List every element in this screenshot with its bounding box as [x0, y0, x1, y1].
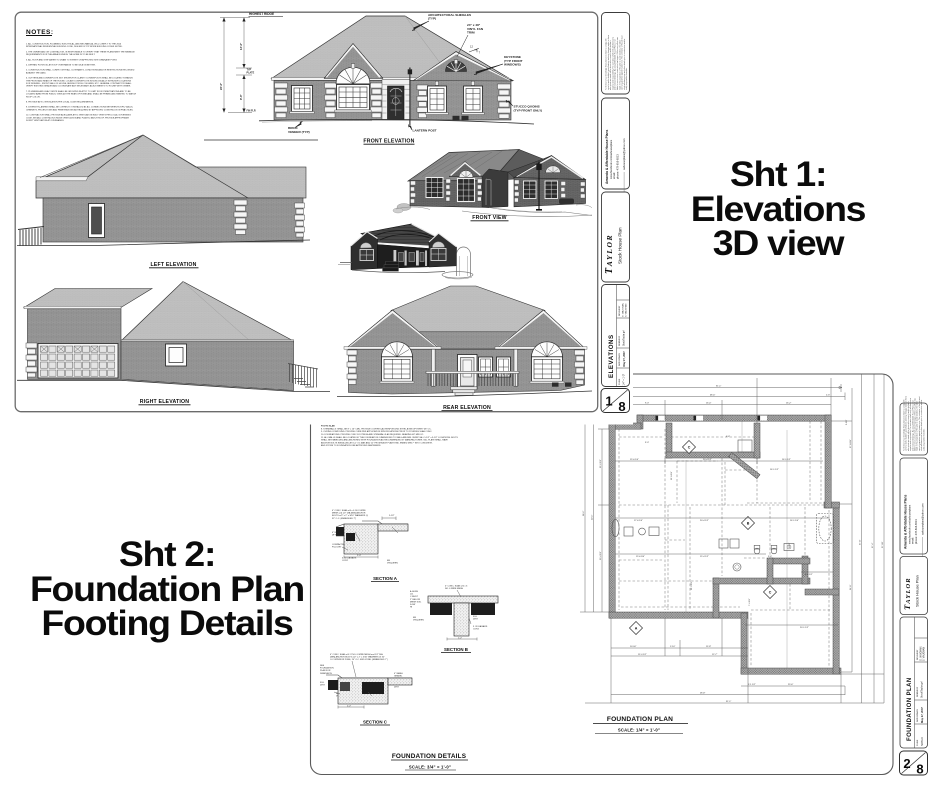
svg-text:4'-6": 4'-6"	[726, 436, 730, 438]
svg-text:28'-2": 28'-2"	[583, 510, 585, 516]
svg-text:1'-2": 1'-2"	[458, 637, 462, 639]
svg-text:11'-4 1/2": 11'-4 1/2"	[638, 654, 647, 656]
svg-text:REQUIREMENTS FOR THE AREA IN W: REQUIREMENTS FOR THE AREA IN WHICH THE H…	[26, 53, 96, 56]
svg-text:31'-1": 31'-1"	[716, 385, 722, 387]
svg-text:5. CONSTRUCTION SHALL COMPLY: 5. CONSTRUCTION SHALL COMPLY WITH ALL CO…	[26, 69, 135, 72]
svg-text:SECTION B: SECTION B	[444, 647, 468, 652]
svg-text:PLATE: PLATE	[247, 72, 255, 75]
svg-text:AND STORE TO FOUNDATION USE AP: AND STORE TO FOUNDATION USE APPROVED FAS…	[321, 444, 381, 447]
svg-text:6'-4 1/2": 6'-4 1/2"	[805, 574, 813, 576]
svg-text:FRONT ELEVATION: FRONT ELEVATION	[363, 139, 414, 145]
svg-text:B: B	[747, 521, 750, 525]
svg-text:6. GUTTERS AND DOWNSPOUTS NOT: 6. GUTTERS AND DOWNSPOUTS NOT SHOWN FOR …	[26, 77, 133, 80]
svg-text:DIRT: DIRT	[473, 619, 479, 621]
svg-text:37'-4": 37'-4"	[872, 542, 874, 548]
svg-text:TAYLOR: TAYLOR	[604, 234, 615, 274]
svg-text:VISQUEEN: VISQUEEN	[387, 563, 398, 565]
svg-text:LEFT ELEVATION: LEFT ELEVATION	[150, 262, 196, 268]
svg-text:G. VAUGHAN,: G. VAUGHAN,	[622, 302, 625, 317]
svg-text:VISQUEEN: VISQUEEN	[413, 620, 424, 622]
svg-text:1'-10": 1'-10"	[670, 646, 676, 648]
svg-text:(MIN) ANCHOR BOLTS w/2" x 2" x: (MIN) ANCHOR BOLTS w/2" x 2" x 3/16" WAS…	[330, 656, 385, 659]
svg-text:FOUNDATION PLAN: FOUNDATION PLAN	[907, 677, 913, 741]
svg-text:G. VAUGHAN,: G. VAUGHAN,	[920, 646, 923, 661]
svg-text:8. PROVIDE ATTIC VENTILATION: 8. PROVIDE ATTIC VENTILATION PER LOCAL C…	[26, 101, 94, 104]
svg-text:8. STEMWALLS: SHALL BE 8" x: 8. STEMWALLS: SHALL BE 8" x 16" CMU. PRO…	[321, 427, 432, 430]
svg-text:22'-2": 22'-2"	[219, 82, 223, 90]
svg-text:AGAINST THE LAND.: AGAINST THE LAND.	[26, 71, 47, 74]
svg-text:A GUNS: A GUNS	[410, 590, 418, 593]
svg-text:20'-4 1/2": 20'-4 1/2"	[700, 520, 709, 522]
svg-text:Amanda & Affordable House Plan: Amanda & Affordable House Plans	[903, 495, 907, 549]
svg-text:SCALE: 1/4" = 1'-0": SCALE: 1/4" = 1'-0"	[618, 728, 660, 733]
svg-text:9. CURING COMPOUND: PROVIDE: 9. CURING COMPOUND: PROVIDE CURB PER APP…	[321, 430, 432, 433]
svg-text:5-1/2": 5-1/2"	[846, 419, 848, 425]
svg-text:DIMENSION: DIMENSION	[320, 673, 332, 675]
svg-text:2'-2": 2'-2"	[347, 705, 351, 707]
svg-text:NO. 6 WIRE MESH: NO. 6 WIRE MESH	[445, 588, 464, 590]
svg-text:solely responsible thereafter.: solely responsible thereafter.	[625, 67, 628, 90]
svg-text:4" WASH: 4" WASH	[394, 672, 403, 675]
svg-text:9'-6": 9'-6"	[768, 556, 772, 558]
svg-text:SCALE: SCALE	[916, 739, 919, 746]
svg-text:TRIM: TRIM	[467, 31, 475, 35]
svg-text:StockTaylor.grf: StockTaylor.grf	[921, 681, 924, 698]
svg-text:8: 8	[618, 399, 625, 414]
svg-text:16'-1 1/4": 16'-1 1/4"	[790, 520, 799, 522]
svg-text:8: 8	[916, 762, 923, 777]
svg-text:11'-8": 11'-8"	[706, 646, 711, 648]
svg-text:10. CONTRACTOR SHALL PROVIDE: 10. CONTRACTOR SHALL PROVIDE ADEQUATE AT…	[26, 114, 131, 117]
svg-text:1. ALL CONSTRUCTION, PLUMBING: 1. ALL CONSTRUCTION, PLUMBING, ELECTRICA…	[26, 43, 122, 46]
svg-text:2. THE OWNER AND OR CONTRACTO: 2. THE OWNER AND OR CONTRACTOR, IS RESPO…	[26, 50, 135, 53]
svg-text:REAR ELEVATION: REAR ELEVATION	[443, 405, 491, 411]
svg-text:CONT.: CONT.	[473, 629, 480, 631]
svg-text:SECTION C: SECTION C	[363, 720, 388, 725]
svg-text:GRAVEL: GRAVEL	[394, 675, 403, 678]
svg-text:9'-0": 9'-0"	[239, 93, 243, 100]
svg-text:9'-0": 9'-0"	[645, 402, 649, 404]
svg-text:40'-1": 40'-1"	[592, 514, 594, 520]
svg-text:O.C.INTERIOR ZONE, 24" O.C. EN: O.C.INTERIOR ZONE, 24" O.C. END ZONE. (E…	[330, 659, 388, 661]
svg-text:MESH and 1/2" DIA (MIN) ANCHOR: MESH and 1/2" DIA (MIN) ANCHOR	[332, 512, 366, 515]
svg-text:20'-1": 20'-1"	[789, 542, 791, 548]
svg-text:17'-6 1/4": 17'-6 1/4"	[634, 520, 643, 522]
svg-text:SCALE: SCALE	[618, 378, 621, 385]
svg-text:13'-4 1/2": 13'-4 1/2"	[600, 551, 602, 560]
svg-text:ANCHOR BOLTS INSTALLED AT 6'-0: ANCHOR BOLTS INSTALLED AT 6'-0" OC MAX A…	[321, 441, 433, 444]
svg-text:phone: 478-616-6513: phone: 478-616-6513	[914, 519, 918, 544]
svg-text:SECTION A: SECTION A	[373, 576, 398, 581]
svg-text:SOFFIT VENTILATION AT OVERHANG: SOFFIT VENTILATION AT OVERHANGS.	[26, 119, 65, 122]
svg-text:57'-8": 57'-8"	[860, 539, 862, 545]
svg-text:CHIMNEYS, PROJECTIONS AND PENE: CHIMNEYS, PROJECTIONS AND PENETRATIONS A…	[26, 108, 134, 111]
svg-text:May 27, 2007: May 27, 2007	[623, 351, 626, 367]
svg-text:NOTED: NOTED	[921, 737, 924, 746]
svg-text:5-1/2": 5-1/2"	[389, 515, 395, 517]
svg-text:32" O.C. (EMBEDDED 7"): 32" O.C. (EMBEDDED 7")	[332, 518, 356, 520]
svg-text:THE FRONT AND REAR OF THE HOUS: THE FRONT AND REAR OF THE HOUSE. LOCATE …	[26, 79, 132, 82]
svg-text:LOCATED AWAY FROM PUBLIC VIEW: LOCATED AWAY FROM PUBLIC VIEW (AT THE RE…	[26, 93, 137, 96]
svg-text:17'-8 3/4": 17'-8 3/4"	[850, 439, 852, 448]
svg-text:FRONT VIEW: FRONT VIEW	[472, 215, 507, 221]
svg-text:HIGHEST RIDGE: HIGHEST RIDGE	[249, 12, 274, 16]
svg-text:LANTERN POST: LANTERN POST	[413, 129, 437, 133]
svg-text:DATE DRAWN: DATE DRAWN	[618, 353, 621, 366]
svg-text:DIRT: DIRT	[320, 685, 326, 687]
svg-text:1/4" = 1'-0": 1/4" = 1'-0"	[623, 374, 626, 386]
svg-text:57'-10": 57'-10"	[882, 541, 884, 548]
svg-text:7'-4 1/2": 7'-4 1/2"	[749, 598, 751, 606]
svg-text:13'-2": 13'-2"	[239, 42, 243, 50]
svg-text:15'-0 1/4": 15'-0 1/4"	[630, 459, 639, 461]
svg-text:2'-0": 2'-0"	[357, 555, 361, 557]
svg-text:10. FOUNDATIONS: PROVIDE CON: 10. FOUNDATIONS: PROVIDE CONC FOOTINGS A…	[321, 433, 424, 436]
svg-text:3 #5 DIA BARS: 3 #5 DIA BARS	[473, 625, 488, 628]
svg-text:aahouseplans@yahoo.com: aahouseplans@yahoo.com	[622, 139, 626, 170]
svg-text:48'-6": 48'-6"	[710, 394, 716, 396]
svg-text:Stock House Plan: Stock House Plan	[618, 227, 623, 264]
svg-text:CONT.: CONT.	[342, 560, 349, 562]
svg-text:9. DIVERSITY-LASHING SHALL BE: 9. DIVERSITY-LASHING SHALL BE CORRECTLY …	[26, 106, 134, 109]
svg-text:4" CONC. SLAB w/6 x 6 1/0 X WI: 4" CONC. SLAB w/6 x 6 1/0 X WIRE	[332, 509, 366, 512]
svg-text:solely responsible thereafter.: solely responsible thereafter.	[922, 428, 925, 451]
svg-text:28'-8": 28'-8"	[700, 693, 706, 695]
svg-text:12'-7": 12'-7"	[712, 654, 718, 656]
svg-text:16'-2": 16'-2"	[786, 402, 792, 404]
svg-text:4" CONC. SLAB w/6 x 6: 4" CONC. SLAB w/6 x 6	[445, 585, 468, 588]
svg-text:Amanda & Affordable House Plan: Amanda & Affordable House Plans	[605, 130, 609, 184]
svg-text:INTERNATIONAL RESIDENTIAL BUIL: INTERNATIONAL RESIDENTIAL BUILDING CODE,…	[26, 45, 123, 48]
svg-text:VENEER (TYP): VENEER (TYP)	[288, 130, 310, 134]
svg-text:16'-0": 16'-0"	[706, 402, 712, 404]
svg-text:15'-4 1/2": 15'-4 1/2"	[700, 556, 709, 558]
svg-text:29'-6": 29'-6"	[788, 684, 794, 686]
svg-text:16'-1 1/2": 16'-1 1/2"	[770, 469, 779, 471]
svg-text:2: 2	[903, 756, 910, 771]
svg-text:PLAN FOR: PLAN FOR	[320, 669, 331, 672]
svg-text:ELEVATIONS: ELEVATIONS	[608, 334, 615, 378]
svg-text:SHALL BE EMBEDDED AND ANCHORED: SHALL BE EMBEDDED AND ANCHORED WITH FOUN…	[321, 439, 448, 442]
svg-text:VERIFY EXISTING GRADES AND COO: VERIFY EXISTING GRADES AND COORDINATE AN…	[26, 85, 131, 88]
svg-text:1: 1	[605, 394, 612, 409]
svg-text:20'-1 1/2": 20'-1 1/2"	[800, 627, 809, 629]
svg-text:3'-0": 3'-0"	[645, 442, 649, 444]
svg-text:DIRT: DIRT	[394, 687, 400, 689]
svg-text:1'-1 1/2": 1'-1 1/2"	[748, 684, 756, 686]
svg-text:DATE DRAWN: DATE DRAWN	[916, 709, 919, 722]
svg-text:20'-4 1/2": 20'-4 1/2"	[703, 459, 712, 461]
svg-text:FOOTG SLAB: FOOTG SLAB	[321, 425, 335, 428]
svg-text:COMPACTED: COMPACTED	[332, 543, 346, 546]
svg-text:11'-3 1/2": 11'-3 1/2"	[691, 581, 693, 590]
svg-text:S. VAUGHAN: S. VAUGHAN	[625, 303, 628, 317]
svg-text:19'-2 1/2": 19'-2 1/2"	[600, 459, 602, 468]
svg-text:C: C	[688, 445, 691, 449]
svg-text:phone: 478-616-6513: phone: 478-616-6513	[615, 154, 619, 179]
svg-text:2'-6": 2'-6"	[826, 394, 830, 396]
svg-text:FOUNDATION DETAILS: FOUNDATION DETAILS	[392, 753, 467, 760]
svg-text:4. DEFINED PLYWOOD AT ROOF OV: 4. DEFINED PLYWOOD AT ROOF OVERHANGS TO …	[26, 64, 96, 67]
svg-text:Stock House Plan: Stock House Plan	[915, 575, 920, 607]
svg-text:4" CONC. SLAB w/6 #2 NO. 6 WIR: 4" CONC. SLAB w/6 #2 NO. 6 WIRE MESH and…	[330, 653, 383, 656]
svg-text:FOUNDATION PLAN: FOUNDATION PLAN	[607, 716, 673, 723]
svg-text:3. ALL ROOF AND SITE WATER TO: 3. ALL ROOF AND SITE WATER TO DRAIN TO S…	[26, 58, 117, 61]
svg-text:CODE. INSTALL CONTINUOUS RIDG: CODE. INSTALL CONTINUOUS RIDGE VENTILATI…	[26, 116, 130, 119]
svg-text:FIN FLR: FIN FLR	[247, 110, 256, 113]
svg-text:DESIGN BY: DESIGN BY	[619, 305, 621, 316]
svg-text:(TYP): (TYP)	[428, 17, 436, 21]
svg-text:DRAWN BY: DRAWN BY	[618, 335, 621, 346]
svg-text:FOUNDATION: FOUNDATION	[320, 667, 334, 670]
svg-text:ROOF COLOR.: ROOF COLOR.	[26, 96, 41, 98]
svg-text:DRAWN BY: DRAWN BY	[916, 686, 919, 697]
svg-text:DESIGN BY: DESIGN BY	[917, 649, 919, 660]
svg-text:NOTES:: NOTES:	[26, 29, 54, 36]
svg-text:A: A	[635, 626, 638, 630]
svg-text:WINDOWS): WINDOWS)	[504, 63, 521, 67]
svg-text:15'-6 3/4": 15'-6 3/4"	[636, 556, 645, 558]
svg-text:16'-1 1/2": 16'-1 1/2"	[782, 459, 791, 461]
svg-text:StockTaylor.grf: StockTaylor.grf	[623, 330, 626, 346]
svg-text:21'-6 1/4": 21'-6 1/4"	[671, 471, 673, 480]
svg-text:34'-6": 34'-6"	[850, 584, 852, 590]
svg-text:FOR DRSWELL, FRONT WALL OF HOU: FOR DRSWELL, FRONT WALL OF HOUSE, BESIDE…	[26, 82, 133, 85]
svg-text:C: C	[769, 590, 772, 594]
svg-text:FILL DIRT: FILL DIRT	[332, 547, 342, 549]
svg-text:May 27, 2007: May 27, 2007	[920, 707, 924, 723]
svg-text:31'-1": 31'-1"	[726, 701, 732, 703]
svg-text:(TYP FRONT ONLY): (TYP FRONT ONLY)	[514, 108, 543, 112]
svg-text:RIGHT ELEVATION: RIGHT ELEVATION	[140, 399, 190, 405]
svg-text:7. PLUMBING AND HVAC VENTS SH: 7. PLUMBING AND HVAC VENTS SHALL BE GROU…	[26, 90, 131, 93]
svg-text:S. VAUGHAN: S. VAUGHAN	[923, 647, 926, 661]
svg-text:aahouseplans@yahoo.com: aahouseplans@yahoo.com	[920, 504, 924, 535]
svg-text:11. ALL WALLS SHALL BE LOCATE: 11. ALL WALLS SHALL BE LOCATED BY THE FO…	[321, 436, 458, 439]
svg-text:10'-10": 10'-10"	[630, 646, 637, 648]
svg-text:BOLTS w/2" x 2" x 3/16" WASHER: BOLTS w/2" x 2" x 3/16" WASHERS @	[332, 514, 368, 517]
svg-text:SCALE: 3/4" = 1'-0": SCALE: 3/4" = 1'-0"	[409, 765, 451, 770]
